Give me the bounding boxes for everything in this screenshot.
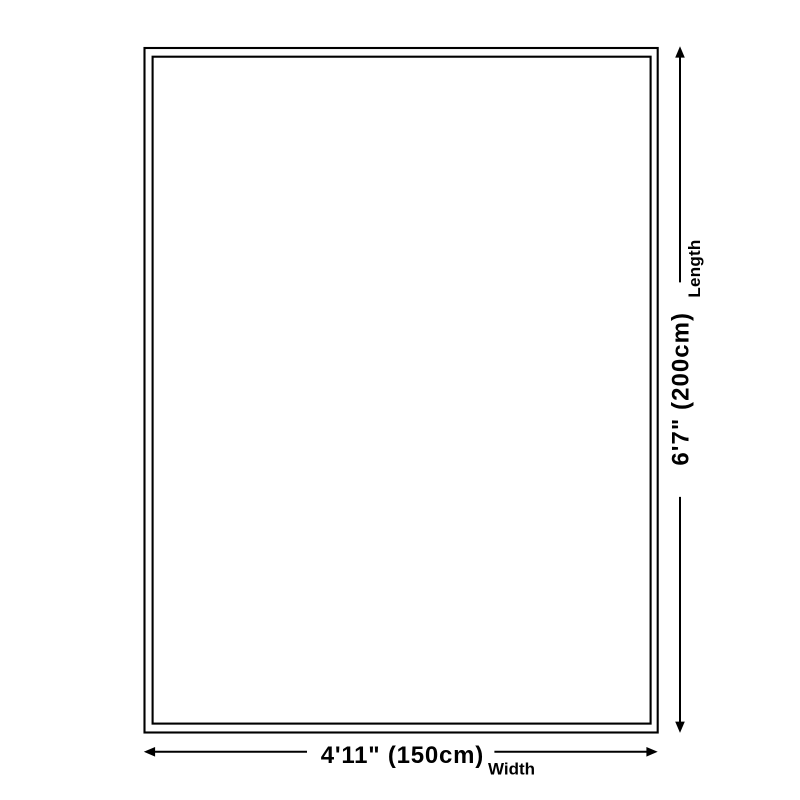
- svg-text:6'7" (200cm): 6'7" (200cm): [667, 312, 694, 466]
- svg-text:4'11" (150cm): 4'11" (150cm): [321, 742, 484, 769]
- svg-text:Length: Length: [685, 239, 704, 297]
- svg-text:Width: Width: [488, 759, 535, 778]
